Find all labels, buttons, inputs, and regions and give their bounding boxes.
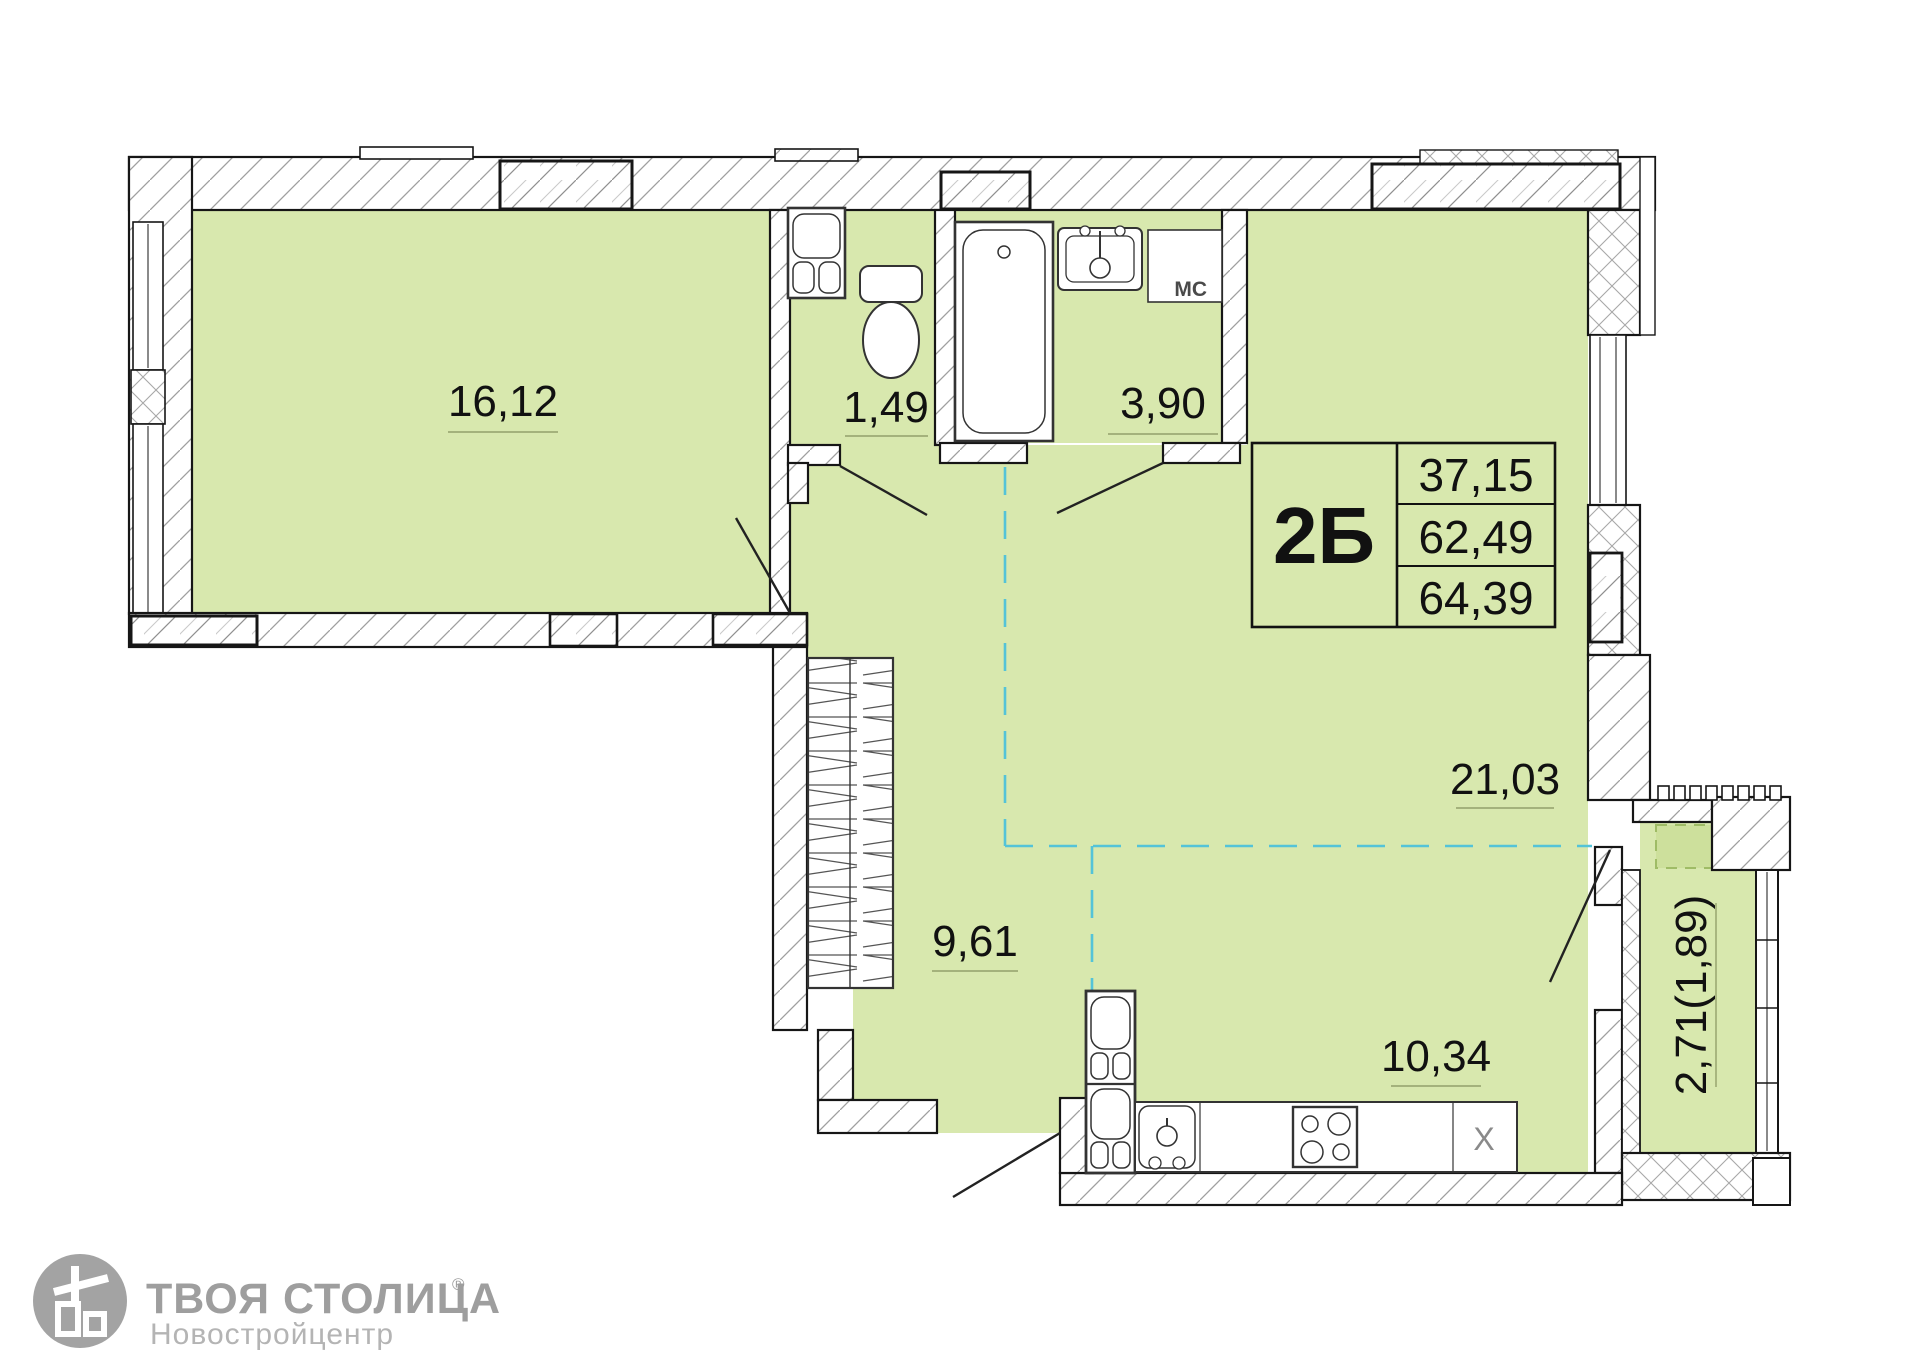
wardrobe-icon xyxy=(808,658,893,988)
logo-reg-mark: ® xyxy=(452,1275,465,1294)
kitchen-vent-mark: X xyxy=(1473,1121,1494,1157)
unit-total-area: 64,39 xyxy=(1418,572,1533,624)
stove-icon xyxy=(1293,1107,1357,1167)
unit-living-area: 37,15 xyxy=(1418,449,1533,501)
outer-strip-right xyxy=(1640,157,1655,335)
wall-hall-bottom xyxy=(818,1100,937,1133)
wall-bath-bottom-right xyxy=(1163,443,1240,463)
wall-bath-bottom-left xyxy=(940,443,1027,463)
wall-kitchen-right-bottom xyxy=(1595,1010,1622,1173)
hall-area-label: 9,61 xyxy=(932,917,1018,966)
window-top-3 xyxy=(1372,164,1620,209)
wall-kitchen-bottom xyxy=(1060,1173,1622,1205)
wall-balcony-top xyxy=(1633,800,1712,822)
wall-right-block xyxy=(1588,655,1650,800)
wall-wc-bath xyxy=(935,210,955,445)
bathtub-icon xyxy=(955,222,1053,441)
door-seg-living xyxy=(713,614,807,645)
window-top-2 xyxy=(941,172,1030,209)
wall-seg-living-bottom-mid xyxy=(550,614,617,646)
logo-subtitle: Новостройцентр xyxy=(150,1318,394,1351)
bathroom-sink-icon xyxy=(1058,226,1142,290)
unit-code: 2Б xyxy=(1273,491,1375,580)
window-right xyxy=(1590,335,1626,505)
pier-left xyxy=(131,370,165,424)
entry-floor xyxy=(937,1100,1060,1133)
company-logo: ТВОЯ СТОЛИЦА ® Новостройцентр xyxy=(33,1254,501,1351)
toilet-icon xyxy=(860,266,922,378)
wall-balcony-bottom-corner xyxy=(1753,1158,1790,1205)
hall-upper-floor xyxy=(788,445,1247,613)
window-living-bottom xyxy=(131,616,257,645)
floorplan-drawing: 2Б 37,15 62,49 64,39 16,12 1,49 3,90 21,… xyxy=(0,0,1920,1358)
kitchen-tall-unit-icon xyxy=(1086,991,1135,1173)
window-right-small xyxy=(1590,553,1622,642)
door-swing-entrance xyxy=(953,1133,1060,1197)
wall-bath-right xyxy=(1222,210,1247,443)
logo-company-name: ТВОЯ СТОЛИЦА xyxy=(146,1275,501,1323)
vent-block-top xyxy=(775,149,858,161)
wc-area-label: 1,49 xyxy=(843,383,929,432)
wc-sink-unit-icon xyxy=(788,208,845,298)
living-area-label: 16,12 xyxy=(448,377,558,426)
washing-machine-mark: МС xyxy=(1174,278,1207,301)
balcony-area-label: 2,71(1,89) xyxy=(1667,895,1716,1096)
window-top-1 xyxy=(500,161,632,209)
wall-hall-left xyxy=(773,647,807,1030)
bathroom-area-label: 3,90 xyxy=(1120,379,1206,428)
floorplan-page: 2Б 37,15 62,49 64,39 16,12 1,49 3,90 21,… xyxy=(0,0,1920,1358)
wall-top-parapet-step xyxy=(360,147,473,159)
kitchen-area-label: 10,34 xyxy=(1381,1032,1491,1081)
hall-lower-floor xyxy=(853,988,893,1100)
kitchen-sink-icon xyxy=(1139,1106,1195,1169)
unit-area-without-balcony: 62,49 xyxy=(1418,511,1533,563)
wall-wc-stub xyxy=(788,463,808,503)
pier-right-top xyxy=(1588,210,1640,335)
main-room-area-label: 21,03 xyxy=(1450,755,1560,804)
wall-hall-left-step xyxy=(818,1030,853,1100)
wall-balcony-left xyxy=(1622,870,1640,1153)
wall-balcony-corner xyxy=(1712,797,1790,870)
